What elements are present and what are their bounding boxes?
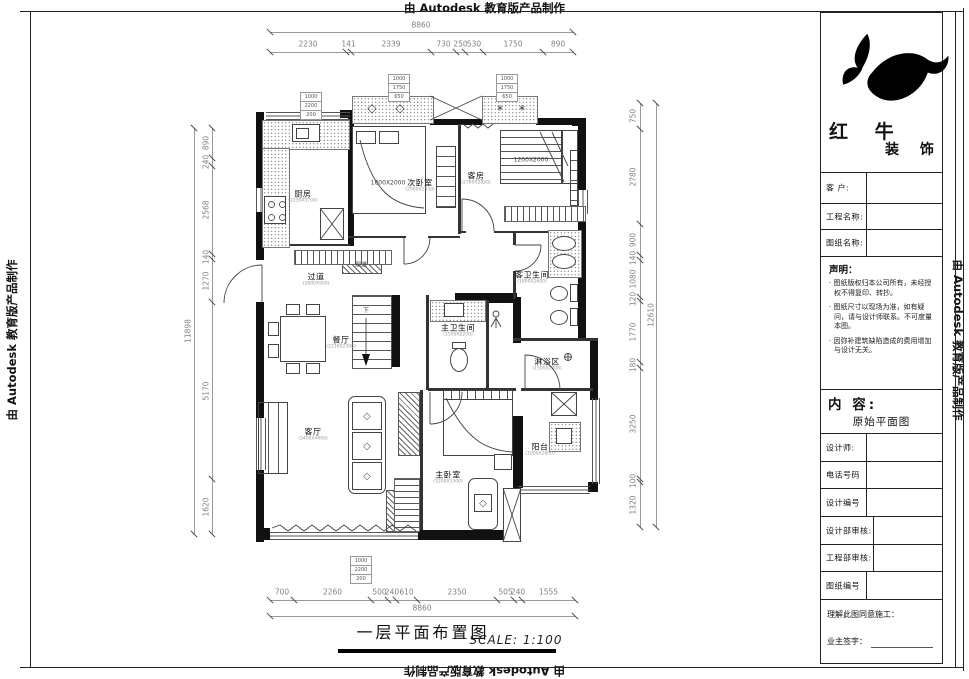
content-box: 内 容: 原始平面图	[821, 389, 942, 433]
room-label-living: 客厅(3400X4400)	[298, 428, 328, 443]
room-sub-label: (2230X3700)	[288, 199, 318, 205]
dimension-text: 1620	[202, 497, 211, 516]
bull-logo	[831, 31, 952, 131]
frame-right-outer	[963, 8, 964, 671]
room-sub-label: (3200X3300)	[433, 480, 463, 486]
window	[592, 398, 600, 484]
dimension-text: 2568	[202, 200, 211, 219]
annotation-duct: 烟道	[355, 260, 367, 269]
signature-line	[871, 647, 933, 648]
room-label-balcony: 阳台(1000X2800)	[525, 443, 555, 458]
partition-wall	[428, 236, 460, 238]
wall-segment	[256, 528, 270, 540]
guest-bath-sink	[552, 236, 576, 251]
sofa-seat: ◇	[352, 462, 382, 490]
drawing-sheet: 由 Autodesk 教育版产品制作 由 Autodesk 教育版产品制作 由 …	[0, 0, 969, 679]
dimension-text: 5170	[202, 381, 211, 400]
shower-head-icon	[493, 311, 499, 317]
row-design-review: 设计部审核:	[821, 516, 942, 544]
room-name: 餐厅	[333, 336, 350, 345]
project-label: 工程名称:	[826, 211, 863, 222]
design-no-label: 设计编号	[826, 497, 860, 508]
dimension-stack-value: 1000	[389, 75, 409, 84]
dimension-stack-value: 650	[389, 93, 409, 101]
pillow	[379, 131, 399, 144]
dimension-line	[270, 600, 575, 601]
toilet-tank	[570, 308, 578, 326]
frame-right	[955, 11, 956, 667]
room-name: 阳台	[532, 443, 549, 452]
dimension-stack-value: 2200	[351, 566, 371, 575]
sill-ornament: *	[497, 103, 503, 117]
guest-bath-sink	[552, 254, 576, 269]
footer-box: 理解此图同意施工： 业主签字：	[821, 599, 942, 663]
dimension-text: 1080	[629, 269, 638, 288]
statement-item: · 因弥补建筑缺陷造成的费用增加与设计无关。	[827, 337, 937, 356]
dimension-stack-value: 1000	[497, 75, 517, 84]
dimension-text: 1320	[629, 495, 638, 514]
dimension-text: 2339	[381, 40, 400, 49]
dimension-text: 2350	[447, 588, 466, 597]
dimension-text: 700	[275, 588, 289, 597]
toilet-tank	[570, 284, 578, 302]
room-name: 过道	[307, 273, 324, 282]
chaise-cushion: ◇	[474, 494, 492, 512]
partition-wall	[348, 236, 406, 238]
room-sub-label: (1000X2800)	[525, 452, 555, 458]
chair	[286, 304, 300, 315]
bed-master-headboard	[443, 390, 513, 400]
room-name: 客厅	[305, 428, 322, 437]
row-phone: 电话号码	[821, 461, 942, 488]
design-review-label: 设计部审核:	[826, 525, 872, 536]
wall-segment	[578, 118, 586, 190]
row-customer: 客 户:	[821, 172, 942, 203]
dimension-text: 8860	[412, 604, 431, 613]
drawing-no-label: 图纸编号	[826, 580, 860, 591]
tv-cabinet	[258, 402, 288, 474]
dimension-text: 11898	[184, 319, 193, 343]
hatched-area	[398, 392, 420, 456]
chair	[306, 304, 320, 315]
wardrobe	[436, 146, 456, 208]
room-sub-label: (1800X2600)	[515, 280, 549, 286]
room-sub-label: (2780X2850)	[461, 181, 491, 187]
row-project: 工程名称:	[821, 203, 942, 229]
room-label-gbath: 客卫生间(1800X2600)	[515, 271, 549, 286]
window	[518, 486, 590, 494]
room-name: 客房	[468, 172, 485, 181]
sill-ornament: ◇	[395, 101, 404, 115]
fridge	[320, 208, 344, 240]
room-name: 主卫生间	[441, 324, 475, 333]
room-label-shower: 淋浴区(1500X1200)	[532, 358, 562, 373]
room-label-master: 主卧室(3200X3300)	[433, 471, 463, 486]
statement-item: · 图纸版权归本公司所有，未经授权不得复印、转抄。	[827, 279, 937, 298]
dimension-text: 8860	[411, 21, 430, 30]
master-toilet-bowl	[450, 348, 468, 372]
dimension-text: 2260	[323, 588, 342, 597]
statement-item: · 图纸尺寸以现场为准，如有疑问，请与设计师联系。不可度量本图。	[827, 303, 937, 332]
annotation-guestbed_size: 1200X2000	[514, 157, 549, 164]
chair	[268, 322, 279, 336]
frame-bottom	[20, 667, 963, 668]
room-label-kitchen: 厨房(2230X3700)	[288, 190, 318, 205]
eng-review-label: 工程部审核:	[826, 553, 872, 564]
partition-wall	[521, 388, 593, 391]
washing-machine	[551, 392, 577, 416]
dimension-text: 890	[202, 136, 211, 150]
dimension-text: 240	[385, 588, 399, 597]
entry-door-arc	[224, 265, 262, 303]
dimension-text: 3250	[629, 414, 638, 433]
toilet-bowl	[550, 286, 568, 301]
dimension-text: 530	[467, 40, 481, 49]
dimension-stack-value: 650	[497, 93, 517, 101]
row-drawing-name: 图纸名称:	[821, 229, 942, 256]
room-name: 次卧室	[407, 179, 433, 188]
dimension-line	[656, 103, 657, 527]
dimension-text: 750	[629, 109, 638, 123]
dimension-text: 180	[629, 358, 638, 372]
dimension-stack-value: 2200	[301, 102, 321, 111]
drawing-name-label: 图纸名称:	[826, 238, 863, 249]
edge-text-left: 由 Autodesk 教育版产品制作	[4, 190, 16, 490]
partition-wall	[426, 295, 429, 390]
dimension-text: 140	[629, 250, 638, 264]
staircase	[352, 295, 392, 369]
dimension-line	[194, 128, 195, 534]
dimension-text: 1555	[539, 588, 558, 597]
bedroom2-door-arc	[404, 238, 430, 264]
row-eng-review: 工程部审核:	[821, 544, 942, 571]
room-sub-label: (2600X900)	[303, 282, 330, 288]
radiator	[504, 206, 586, 222]
master-toilet-tank	[452, 342, 466, 349]
floor-drain-icon	[565, 354, 572, 361]
shaft-x	[430, 96, 482, 120]
radiator	[394, 478, 420, 532]
dimension-text: 250	[453, 40, 467, 49]
row-design-no: 设计编号	[821, 488, 942, 516]
dimension-stack-value: 1000	[301, 93, 321, 102]
desk	[570, 150, 578, 206]
partition-wall	[513, 233, 516, 245]
partition-wall	[458, 231, 466, 233]
room-sub-label: (1500X2200)	[441, 333, 475, 339]
sill-ornament: *	[519, 103, 525, 117]
floor-drain-cross	[565, 354, 572, 361]
dimension-stack: 10002200200	[300, 92, 322, 120]
room-name: 主卧室	[435, 471, 461, 480]
dimension-text: 2230	[298, 40, 317, 49]
content-value: 原始平面图	[821, 414, 942, 429]
content-label: 内 容:	[828, 393, 877, 413]
dimension-text: 890	[551, 40, 565, 49]
toilet-bowl	[550, 310, 568, 325]
dimension-text: 730	[436, 40, 450, 49]
partition-wall	[486, 300, 489, 390]
title-underline-bar	[338, 649, 556, 653]
wall-segment	[513, 297, 521, 343]
customer-label: 客 户:	[826, 183, 849, 194]
dimension-text: 900	[629, 232, 638, 246]
frame-left	[30, 11, 31, 667]
dimension-line	[270, 616, 575, 617]
brand-suffix: 装 饰	[885, 139, 942, 159]
room-label-hallway: 过道(2600X900)	[303, 273, 330, 288]
dimension-text: 1750	[503, 40, 522, 49]
edge-text-top: 由 Autodesk 教育版产品制作	[0, 0, 969, 11]
dining-table	[280, 316, 326, 362]
partition-wall	[578, 338, 598, 341]
room-sub-label: (1500X1200)	[532, 367, 562, 373]
room-name: 淋浴区	[534, 358, 560, 367]
dimension-stack-value: 200	[301, 111, 321, 119]
dimension-stack: 10001750650	[388, 74, 410, 102]
guest-bath-door-arc	[515, 245, 541, 271]
designer-label: 设计师:	[826, 442, 855, 453]
dimension-text: 140	[202, 249, 211, 263]
dimension-stack-value: 1750	[389, 84, 409, 93]
dimension-stack-value: 1000	[351, 557, 371, 566]
water-heater	[556, 428, 572, 444]
chair	[268, 344, 279, 358]
guestroom-door-arc	[462, 199, 494, 231]
master-bath-sink	[444, 303, 464, 317]
bull-logo-horn	[843, 34, 870, 85]
dimension-text: 1770	[629, 322, 638, 341]
dimension-stack-value: 1750	[497, 84, 517, 93]
dimension-line	[270, 52, 573, 53]
annotation-bed2_size: 1800X2000	[371, 180, 406, 187]
room-label-dining: 餐厅(2230X2300)	[326, 336, 356, 351]
dimension-text: 141	[341, 40, 355, 49]
wall-segment	[430, 119, 482, 125]
radiator	[294, 250, 392, 265]
dimension-line	[270, 32, 573, 33]
shower-spray-lines	[491, 318, 501, 328]
bull-logo-body	[867, 53, 948, 100]
kitchen-sink-basin	[296, 128, 309, 139]
agree-label: 理解此图同意施工：	[827, 609, 899, 620]
room-name: 厨房	[295, 190, 312, 199]
sheet-scale: SCALE: 1:100	[470, 633, 563, 647]
sofa-seat: ◇	[352, 402, 382, 430]
dimension-text: 120	[629, 292, 638, 306]
dimension-stack: 10002200200	[350, 556, 372, 584]
dimension-stack: 10001750650	[496, 74, 518, 102]
statement-items: · 图纸版权归本公司所有，未经授权不得复印、转抄。· 图纸尺寸以现场为准，如有疑…	[827, 279, 937, 361]
chair	[286, 363, 300, 374]
dimension-text: 100	[629, 473, 638, 487]
wall-segment	[256, 302, 264, 418]
room-label-guest: 客房(2780X2850)	[461, 172, 491, 187]
stove	[264, 196, 286, 224]
structural-column	[503, 488, 521, 542]
row-designer: 设计师:	[821, 433, 942, 461]
owner-sign-label: 业主签字：	[827, 636, 867, 647]
room-label-bedroom2: 次卧室(2900X2339)	[405, 179, 435, 194]
window	[270, 532, 418, 540]
row-drawing-no: 图纸编号	[821, 571, 942, 599]
partition-wall	[420, 390, 423, 530]
dimension-text: 2780	[629, 167, 638, 186]
dimension-text: 12610	[647, 303, 656, 327]
pillow	[356, 131, 376, 144]
dimension-text: 240	[202, 155, 211, 169]
statement-title: 声明：	[829, 262, 858, 276]
edge-text-bottom: 由 Autodesk 教育版产品制作	[0, 668, 969, 679]
annotation-stair_down: 下	[363, 306, 369, 315]
dimension-line	[212, 128, 213, 534]
nightstand	[494, 454, 512, 470]
sill-ornament: ◇	[367, 101, 376, 115]
dimension-line	[640, 103, 641, 527]
title-block: 红 牛 装 饰 客 户: 工程名称: 图纸名称: 声明： · 图纸版权归本公司所…	[820, 12, 943, 664]
sofa-seat: ◇	[352, 432, 382, 460]
phone-label: 电话号码	[826, 470, 860, 481]
dimension-text: 610	[399, 588, 413, 597]
dimension-text: 240	[511, 588, 525, 597]
room-label-mbath: 主卫生间(1500X2200)	[441, 324, 475, 339]
statement-box: 声明： · 图纸版权归本公司所有，未经授权不得复印、转抄。· 图纸尺寸以现场为准…	[821, 256, 942, 389]
dimension-text: 1270	[202, 271, 211, 290]
room-sub-label: (2230X2300)	[326, 345, 356, 351]
room-sub-label: (3400X4400)	[298, 437, 328, 443]
dimension-stack-value: 200	[351, 575, 371, 583]
room-sub-label: (2900X2339)	[405, 188, 435, 194]
chair	[306, 363, 320, 374]
room-name: 客卫生间	[515, 271, 549, 280]
wall-segment	[513, 416, 523, 488]
